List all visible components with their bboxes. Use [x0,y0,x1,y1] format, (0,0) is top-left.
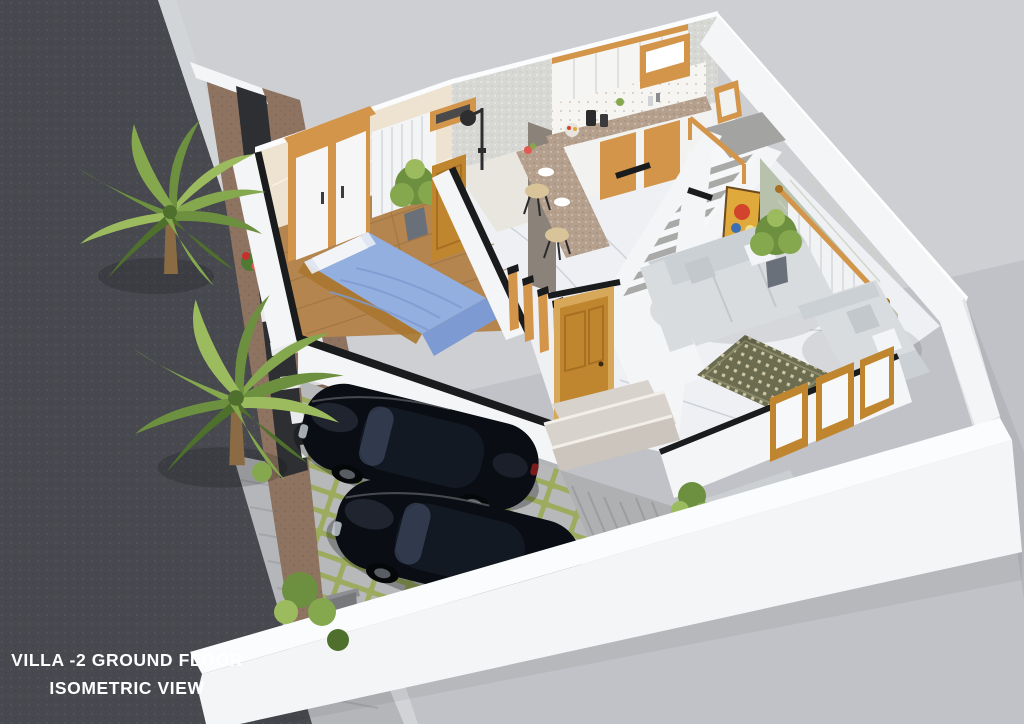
scene-canvas: VILLA -2 GROUND FLOOR ISOMETRIC VIEW [0,0,1024,724]
caption-line-1: VILLA -2 GROUND FLOOR [11,650,243,670]
caption-line-2: ISOMETRIC VIEW [49,678,204,698]
isometric-render: VILLA -2 GROUND FLOOR ISOMETRIC VIEW [0,0,1024,724]
